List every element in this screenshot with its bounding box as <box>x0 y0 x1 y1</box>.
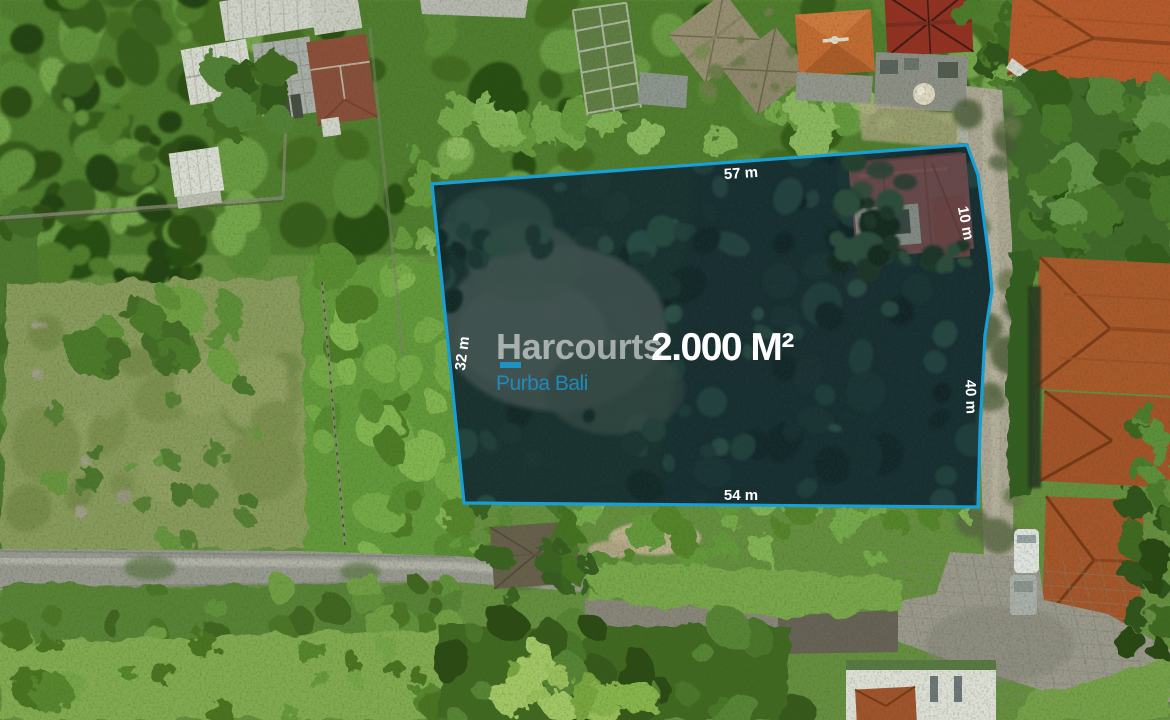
svg-text:Purba Bali: Purba Bali <box>496 372 588 395</box>
svg-text:57 m: 57 m <box>723 164 758 183</box>
svg-text:Harcourts: Harcourts <box>496 326 662 367</box>
svg-text:2.000 M²: 2.000 M² <box>651 326 794 369</box>
svg-text:54 m: 54 m <box>724 487 758 504</box>
svg-text:40 m: 40 m <box>961 379 979 414</box>
